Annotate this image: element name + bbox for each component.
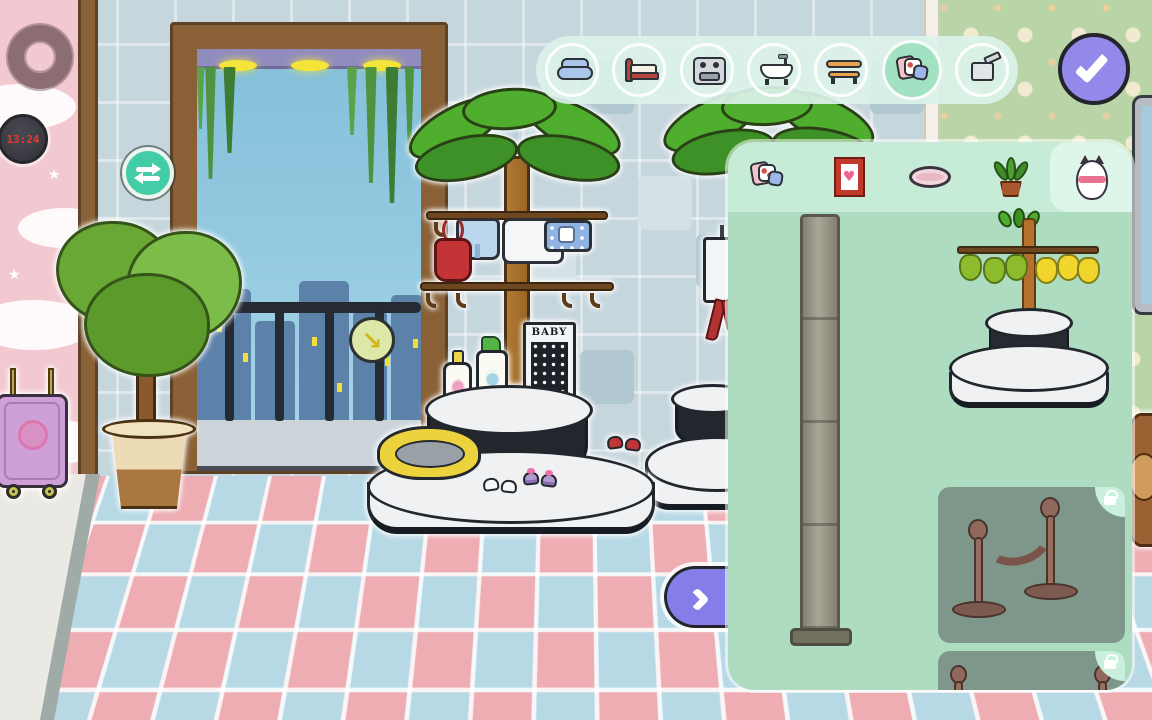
mirror-glass — [1142, 106, 1152, 304]
banana-bunch-yellow — [1035, 257, 1058, 284]
foliage — [84, 273, 210, 377]
tab-rugs[interactable] — [890, 142, 971, 212]
rack-hook — [590, 293, 600, 308]
railing-post — [275, 309, 284, 421]
star: ★ — [8, 268, 21, 282]
pet-bed-cushion — [395, 440, 465, 468]
game-scene: ★ ★ ★ ↘ — [0, 0, 1152, 720]
column-shaft — [800, 214, 840, 632]
mirror[interactable] — [1132, 95, 1152, 315]
category-kitchen[interactable] — [680, 43, 734, 97]
shorts-split — [475, 244, 480, 258]
potted-plant-icon — [991, 155, 1031, 199]
pet-bed — [377, 426, 481, 480]
white-shoe — [482, 477, 500, 492]
confirm-button[interactable] — [1058, 33, 1130, 105]
oval-rug-icon — [909, 166, 951, 188]
panel-collapse-button[interactable] — [664, 566, 730, 628]
category-toolbar — [536, 36, 1018, 104]
suitcase-wheel — [6, 484, 21, 499]
hanging-bag — [434, 238, 472, 282]
leaf — [995, 208, 1014, 230]
railing-post — [325, 309, 334, 421]
category-decor[interactable] — [882, 40, 942, 100]
item-stone-column[interactable] — [786, 214, 856, 654]
magazine-title: BABY — [526, 327, 573, 338]
banana-bunch-green — [959, 254, 982, 281]
pot-rim — [102, 419, 196, 439]
lock-icon — [1104, 660, 1116, 669]
tab-pictures[interactable]: ♥ — [809, 142, 890, 212]
potted-tree[interactable] — [50, 215, 248, 510]
vine — [221, 67, 238, 153]
stanchion-post — [1098, 681, 1107, 690]
suitcase-wheel — [42, 484, 57, 499]
lock-icon — [1104, 496, 1116, 505]
heart-picture-icon: ♥ — [836, 159, 863, 195]
wall-ring-decoration[interactable] — [8, 25, 72, 89]
red-shoe — [606, 435, 624, 450]
red-shoe — [624, 437, 642, 452]
star: ★ — [48, 168, 61, 182]
cushion-stack-icon — [745, 156, 791, 198]
rope — [962, 659, 1100, 690]
chevron-right-icon — [685, 587, 709, 611]
cat-figurine-icon — [1072, 154, 1112, 200]
vine — [345, 67, 359, 135]
vine — [363, 67, 379, 183]
rack-hook — [426, 293, 436, 308]
item-banana-tree-display[interactable] — [943, 212, 1115, 412]
banana-bunch-green — [1005, 254, 1028, 281]
category-sofas[interactable] — [545, 43, 599, 97]
wall-swap-button[interactable] — [122, 147, 174, 199]
bootie-bow — [545, 470, 553, 476]
rack-bar — [420, 282, 614, 291]
vine — [203, 67, 218, 179]
tab-cushions[interactable] — [728, 142, 809, 212]
rack-hook — [562, 293, 572, 308]
vine — [197, 67, 206, 129]
item-rope-barrier[interactable] — [938, 651, 1125, 690]
category-bathroom[interactable] — [747, 43, 801, 97]
cloth-patch — [558, 226, 575, 243]
item-stanchion-posts[interactable] — [938, 487, 1125, 643]
panel-body — [728, 212, 1132, 690]
pedestal-top — [985, 308, 1073, 338]
wall-clock[interactable]: 13:24 — [0, 114, 48, 164]
column-base — [790, 628, 852, 646]
pedestal-base-top — [949, 344, 1109, 392]
stanchion-post — [954, 681, 963, 690]
tab-figurines[interactable] — [1051, 142, 1132, 212]
banana-bunch-yellow — [1077, 257, 1100, 284]
panel-tabs: ♥ — [728, 142, 1132, 212]
white-shoe — [500, 479, 517, 494]
rose-emblem — [18, 420, 48, 450]
banana-bunch-green — [983, 257, 1006, 284]
checkmark-icon — [1075, 48, 1109, 83]
items-panel: ♥ — [728, 142, 1132, 690]
bootie-bow — [527, 468, 535, 474]
display-pedestal[interactable]: BABY — [355, 310, 667, 550]
ceiling-light — [291, 60, 329, 71]
category-storage[interactable] — [955, 43, 1009, 97]
stanchion-base — [1024, 583, 1078, 600]
locked-corner — [1095, 487, 1125, 517]
tab-plants[interactable] — [970, 142, 1051, 212]
category-shelves[interactable] — [814, 43, 868, 97]
stanchion-base — [952, 601, 1006, 618]
pot — [108, 427, 190, 509]
stanchion-post — [974, 537, 983, 607]
rack-hook — [456, 293, 466, 308]
clock-time: 13:24 — [6, 133, 39, 146]
hanger-bar — [957, 246, 1099, 254]
suitcase[interactable] — [0, 368, 74, 516]
category-beds[interactable] — [612, 43, 666, 97]
